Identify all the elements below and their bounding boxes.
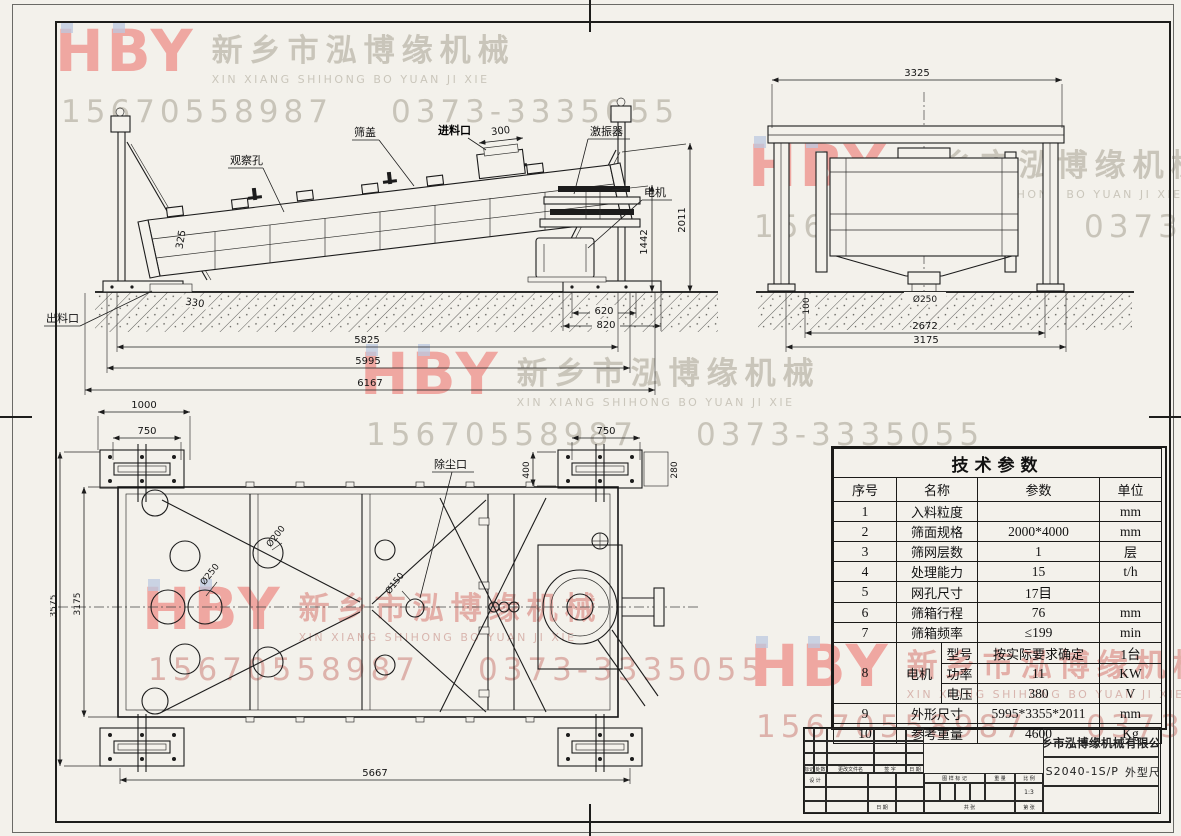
dim-5825: 5825 — [354, 335, 379, 346]
discharge-outlet-label: 出料口 — [46, 311, 79, 325]
rev-date-label: 日 期 — [906, 765, 924, 773]
cell-unit: mm — [1100, 522, 1162, 542]
rev-count-label: 处数 — [814, 765, 827, 773]
motor-body — [528, 238, 606, 282]
cell-no: 7 — [834, 623, 897, 643]
center-mark-top — [589, 0, 591, 32]
rev-sign-label: 签 字 — [874, 765, 906, 773]
company-name: 新乡市泓博缘机械有限公司 — [1043, 728, 1159, 757]
col-header-param: 参数 — [978, 478, 1100, 502]
dim-100: 100 — [802, 297, 812, 314]
dim-6167: 6167 — [357, 378, 382, 389]
cell-name: 筛箱行程 — [897, 603, 978, 623]
cell-unit: 层 — [1100, 542, 1162, 562]
dim-diam-200: Ø200 — [264, 523, 288, 549]
cell-param: 17目 — [978, 582, 1100, 603]
dim-300: 300 — [491, 125, 511, 138]
rev-mark-label: 标记 — [804, 765, 814, 773]
dim-2011: 2011 — [677, 207, 688, 232]
cell-unit: 1台 — [1100, 643, 1162, 664]
cell-unit: mm — [1100, 704, 1162, 724]
dim-820: 820 — [596, 320, 615, 331]
col-header-no: 序号 — [834, 478, 897, 502]
design-label: 设 计 — [804, 773, 826, 787]
dim-2672: 2672 — [912, 321, 937, 332]
cell-no: 8 — [834, 643, 897, 704]
title-block: 标记 处数 更改文件名 签 字 日 期 设 计 日 期 图 样 标 记 重 量 … — [803, 727, 1161, 814]
motor-label: 电机 — [644, 185, 666, 199]
dim-5667: 5667 — [362, 768, 387, 779]
cell-param: 15 — [978, 562, 1100, 582]
cell-no: 3 — [834, 542, 897, 562]
drawing-number: FHS2040-1S/P — [1043, 765, 1119, 778]
drawing-name: 外型尺寸 — [1125, 764, 1159, 780]
cell-param: 5995*3355*2011 — [978, 704, 1100, 724]
cell-unit: mm — [1100, 502, 1162, 522]
cell-param: 2000*4000 — [978, 522, 1100, 542]
weight-label: 重 量 — [985, 773, 1015, 783]
cell-param — [978, 502, 1100, 522]
pattern-mark-label: 图 样 标 记 — [924, 773, 985, 783]
dim-750-left: 750 — [137, 426, 156, 437]
col-header-unit: 单位 — [1100, 478, 1162, 502]
cell-name: 入料粒度 — [897, 502, 978, 522]
dim-3575: 3575 — [50, 595, 59, 618]
cell-unit: t/h — [1100, 562, 1162, 582]
rev-file-label: 更改文件名 — [827, 765, 874, 773]
table-row: 1入料粒度mm — [834, 502, 1162, 522]
center-mark-bottom — [589, 804, 591, 836]
sheets-total-label: 共 张 — [924, 801, 1015, 813]
table-row: 3筛网层数1层 — [834, 542, 1162, 562]
dim-5995: 5995 — [355, 356, 380, 367]
cell-unit: min — [1100, 623, 1162, 643]
center-mark-left — [0, 416, 32, 418]
cell-no: 1 — [834, 502, 897, 522]
cell-unit: V — [1100, 684, 1162, 704]
cell-sub: 功率 — [942, 664, 978, 684]
exciter-label: 激振器 — [590, 124, 623, 138]
spec-table-title: 技术参数 — [834, 449, 1162, 478]
cell-unit: KW — [1100, 664, 1162, 684]
table-row: 7筛箱频率≤199min — [834, 623, 1162, 643]
dim-280: 280 — [670, 461, 680, 478]
screen-body-end — [830, 148, 1018, 296]
dim-250: Ø250 — [913, 294, 938, 305]
screen-cover-label: 筛盖 — [354, 125, 376, 139]
table-row-motor: 8 电机 型号 按实际要求确定 1台 — [834, 643, 1162, 664]
dim-3175: 3175 — [913, 335, 938, 346]
cell-param: ≤199 — [978, 623, 1100, 643]
col-header-name: 名称 — [897, 478, 978, 502]
dim-3175-plan: 3175 — [73, 593, 83, 616]
table-row: 5网孔尺寸17目 — [834, 582, 1162, 603]
scale-value: 1:3 — [1015, 783, 1043, 801]
dim-750-right: 750 — [596, 426, 615, 437]
cell-unit: mm — [1100, 603, 1162, 623]
sheet-no-label: 第 张 — [1015, 801, 1043, 813]
technical-parameters-table: 技术参数 序号 名称 参数 单位 1入料粒度mm 2筛面规格2000*4000m… — [833, 448, 1162, 744]
cell-sub: 电压 — [942, 684, 978, 704]
plan-callouts: 除尘口 Ø250 Ø200 Ø150 — [198, 457, 474, 601]
date-label: 日 期 — [868, 801, 896, 813]
table-row: 6筛箱行程76mm — [834, 603, 1162, 623]
dim-400: 400 — [522, 461, 532, 478]
drawing-title: FHS2040-1S/P 外型尺寸 — [1043, 757, 1159, 786]
cell-no: 6 — [834, 603, 897, 623]
dim-diam-250: Ø250 — [198, 561, 222, 587]
cell-name: 外形尺寸 — [897, 704, 978, 724]
cell-param: 1 — [978, 542, 1100, 562]
dim-1442: 1442 — [639, 229, 650, 254]
side-view-drawing: 观察孔 筛盖 进料口 激振器 电机 出料口 300 325 330 — [40, 95, 760, 400]
feed-inlet-label: 进料口 — [438, 123, 471, 137]
dim-620: 620 — [594, 306, 613, 317]
cell-param: 按实际要求确定 — [978, 643, 1100, 664]
cell-param: 380 — [978, 684, 1100, 704]
engineering-drawing-sheet: HBY 新乡市泓博缘机械 XIN XIANG SHIHONG BO YUAN J… — [0, 0, 1181, 836]
end-view-drawing: 3325 Ø250 100 2672 3175 — [750, 55, 1180, 365]
cell-unit — [1100, 582, 1162, 603]
cell-no: 4 — [834, 562, 897, 582]
cell-no: 5 — [834, 582, 897, 603]
table-row: 4处理能力15t/h — [834, 562, 1162, 582]
table-row: 9外形尺寸5995*3355*2011mm — [834, 704, 1162, 724]
dim-1000: 1000 — [131, 400, 156, 411]
plan-holes — [151, 538, 519, 677]
cell-motor: 电机 — [897, 643, 942, 704]
cell-param: 11 — [978, 664, 1100, 684]
drive-pulley — [538, 533, 664, 706]
observation-hole-label: 观察孔 — [230, 153, 263, 167]
dim-3325: 3325 — [904, 68, 929, 79]
cell-param: 76 — [978, 603, 1100, 623]
table-row: 2筛面规格2000*4000mm — [834, 522, 1162, 542]
dust-port-label: 除尘口 — [434, 457, 467, 471]
plan-view-drawing: 除尘口 Ø250 Ø200 Ø150 1000 750 750 — [50, 400, 780, 790]
cell-name: 筛面规格 — [897, 522, 978, 542]
cell-name: 处理能力 — [897, 562, 978, 582]
cell-sub: 型号 — [942, 643, 978, 664]
cell-name: 网孔尺寸 — [897, 582, 978, 603]
center-mark-right — [1149, 416, 1181, 418]
scale-label: 比 例 — [1015, 773, 1043, 783]
cell-name: 筛网层数 — [897, 542, 978, 562]
cell-no: 9 — [834, 704, 897, 724]
cell-no: 2 — [834, 522, 897, 542]
cell-name: 筛箱频率 — [897, 623, 978, 643]
